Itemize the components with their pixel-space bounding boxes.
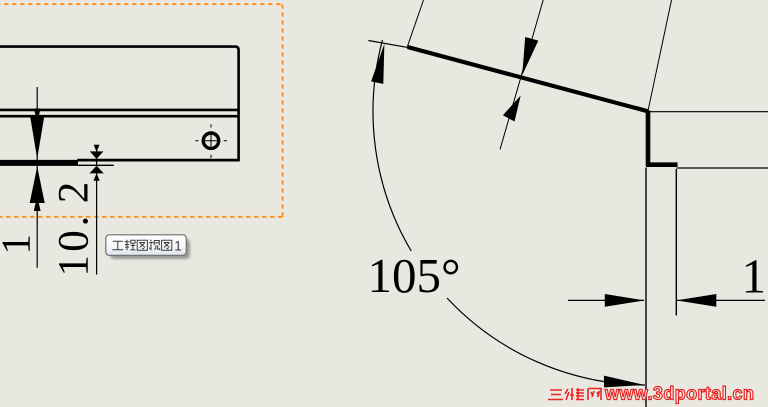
svg-text:.: . (50, 216, 97, 227)
svg-text:1: 1 (0, 234, 38, 255)
svg-text:2: 2 (50, 182, 97, 204)
svg-text:105°: 105° (368, 248, 461, 303)
svg-text:www.3dportal.cn: www.3dportal.cn (604, 384, 754, 404)
svg-text:1: 1 (742, 249, 767, 304)
svg-text:0: 0 (50, 230, 97, 252)
svg-text:1: 1 (174, 239, 182, 254)
svg-text:1: 1 (50, 255, 97, 277)
